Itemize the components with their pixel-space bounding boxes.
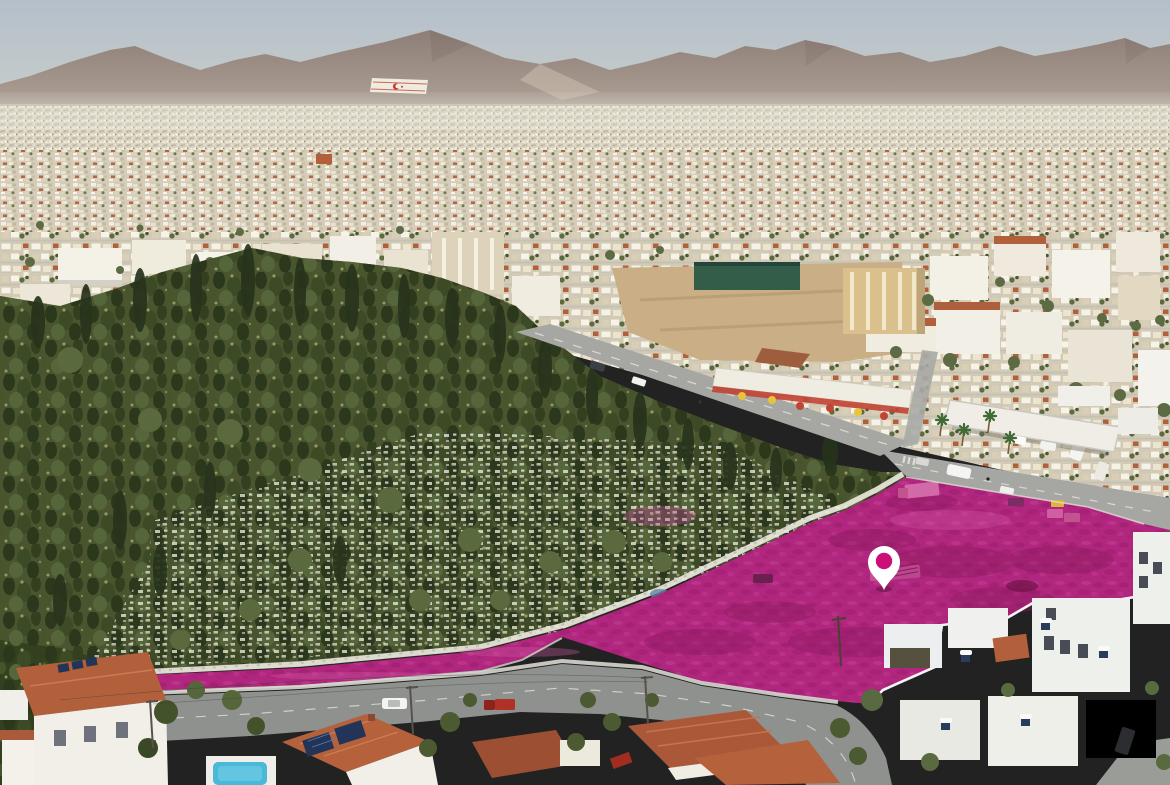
building-right-edge [1133,532,1170,624]
house-left [16,652,168,785]
white-car [382,698,407,709]
swimming-pool [206,756,276,785]
red-pickup-truck [484,699,515,710]
city-mid-band [0,150,1170,234]
aerial-photo [0,0,1170,785]
construction-fence [694,262,800,290]
flag-on-mountain [370,78,428,94]
